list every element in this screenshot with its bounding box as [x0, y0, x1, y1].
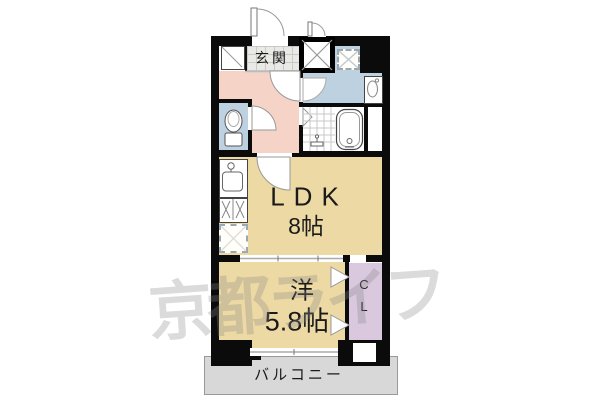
hall-washroom-wall-a — [299, 73, 303, 78]
sliding-partition-gap — [240, 255, 343, 262]
pipe-space-box — [299, 37, 335, 73]
bathroom-wall-divider — [364, 107, 368, 151]
balcony-window-gap — [250, 348, 338, 356]
bathroom-floor — [303, 107, 364, 151]
toilet-wall-right-a — [248, 103, 252, 107]
hall-ldk-wall-right — [292, 153, 303, 157]
closet-top-gap — [350, 255, 366, 262]
outer-wall-left — [211, 36, 219, 366]
pillar-window — [353, 343, 376, 362]
toilet-wall-bottom — [219, 150, 252, 157]
bathroom-wall-bottom — [303, 151, 382, 157]
entrance-door-icon — [251, 8, 284, 36]
pillar-bottom-left — [211, 340, 252, 366]
entrance-door-gap — [252, 36, 288, 46]
toilet-room — [219, 103, 248, 150]
ps-door-icon — [308, 22, 325, 36]
ldk-size-label: 8帖 — [288, 207, 324, 241]
gas-stove-box — [219, 198, 248, 223]
kitchen-sink-box — [219, 159, 248, 198]
shoe-cabinet-box — [221, 46, 245, 70]
outer-wall-right — [382, 36, 390, 366]
washing-machine-space-box — [337, 49, 360, 70]
closet-wall-left — [345, 262, 349, 342]
hallway-upper — [219, 71, 299, 99]
toilet-wall-right-b — [248, 130, 252, 150]
washbasin-box — [364, 76, 383, 104]
balcony-label: バルコニー — [254, 364, 344, 385]
floorplan-canvas: 玄関 LDK 8帖 洋 5.8帖 CL バルコニー 京都ライフ — [0, 0, 600, 400]
bath-side-strip — [368, 107, 382, 151]
corner-block-topright — [360, 36, 390, 73]
refrigerator-space-box — [219, 224, 248, 253]
hallway-lower — [252, 99, 299, 153]
western-room-size-label: 5.8帖 — [265, 300, 330, 339]
closet-label: CL — [358, 274, 371, 318]
genkan-label: 玄関 — [255, 48, 289, 68]
